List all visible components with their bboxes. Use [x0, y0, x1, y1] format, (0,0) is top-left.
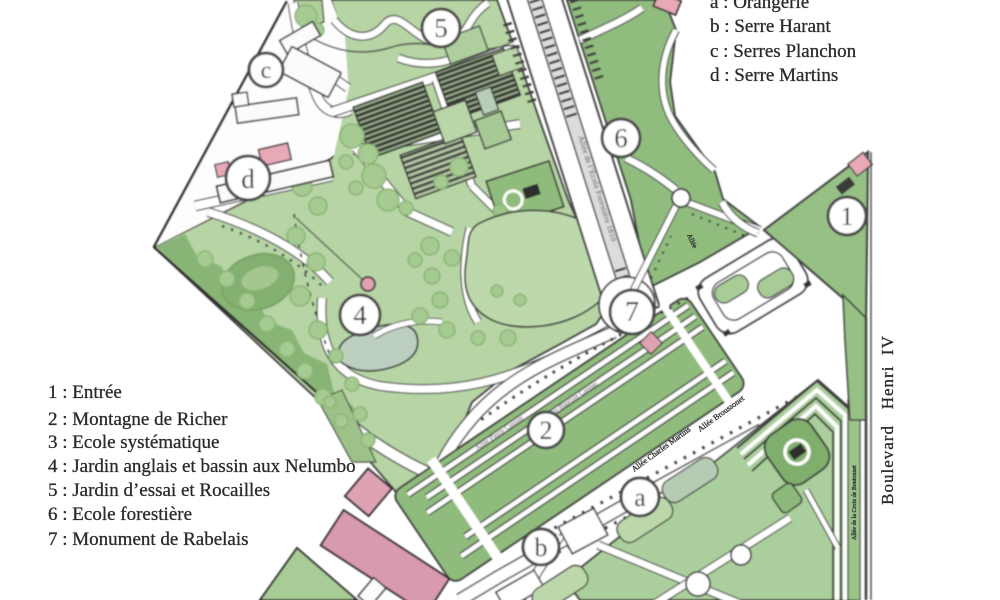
svg-text:6: 6	[614, 123, 628, 153]
svg-text:a: a	[634, 483, 646, 512]
svg-text:a : Orangerie: a : Orangerie	[710, 0, 809, 13]
svg-text:2 : Montagne de Richer: 2 : Montagne de Richer	[48, 409, 228, 430]
svg-text:1 : Entrée: 1 : Entrée	[48, 382, 122, 403]
svg-text:b: b	[535, 533, 548, 562]
svg-text:3 : Ecole systématique: 3 : Ecole systématique	[48, 432, 219, 453]
svg-text:d : Serre Martins: d : Serre Martins	[710, 65, 838, 86]
svg-text:1: 1	[841, 202, 854, 231]
svg-text:4: 4	[353, 300, 367, 330]
svg-text:4 : Jardin anglais et bassin: 4 : Jardin anglais et bassin aux Nelumbo	[48, 456, 356, 477]
svg-text:c : Serres Planchon: c : Serres Planchon	[710, 41, 857, 62]
svg-text:7 : Monument de Rabelais: 7 : Monument de Rabelais	[48, 529, 249, 550]
svg-text:c: c	[261, 58, 272, 84]
svg-text:b : Serre Harant: b : Serre Harant	[710, 16, 832, 37]
svg-text:5: 5	[434, 13, 448, 43]
svg-text:2: 2	[540, 416, 553, 445]
svg-text:6 : Ecole forestière: 6 : Ecole forestière	[48, 504, 192, 525]
svg-text:Allée de la Croix de Boutonnet: Allée de la Croix de Boutonnet	[852, 465, 858, 540]
svg-text:Boulevard Henri IV: Boulevard Henri IV	[878, 335, 897, 505]
svg-text:d: d	[241, 164, 255, 194]
svg-text:7: 7	[625, 297, 639, 328]
svg-text:5 : Jardin d’essai et Rocaill: 5 : Jardin d’essai et Rocailles	[48, 480, 270, 501]
